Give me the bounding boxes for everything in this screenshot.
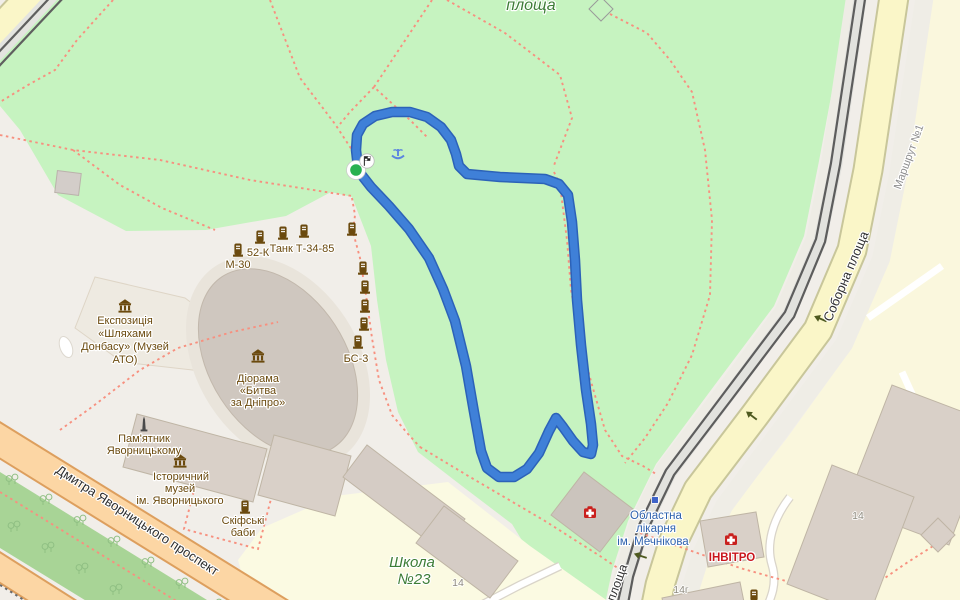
map-canvas[interactable]: площа М-30 52-К Танк Т-34-85 БС-3 Експоз… (0, 0, 960, 600)
label-hospital-stop-2: лікарня (636, 523, 676, 535)
label-museum-2: музей (165, 483, 195, 495)
label-diorama-3: за Дніпро» (231, 397, 286, 409)
label-diorama-1: Діорама (237, 373, 280, 385)
memorial-icon (353, 336, 363, 349)
memorial-icon (233, 244, 243, 257)
label-hospital-stop-3: ім. Мечнікова (617, 536, 689, 548)
memorial-icon (360, 281, 370, 294)
memorial-icon (749, 590, 759, 600)
memorial-icon (278, 227, 288, 240)
small-gray-building (55, 171, 82, 196)
memorial-icon (359, 318, 369, 331)
label-diorama-2: «Битва (240, 385, 277, 397)
memorial-icon (358, 262, 368, 275)
label-pamyatnyk-1: Пам'ятник (118, 433, 170, 445)
label-bs3: БС-3 (344, 353, 369, 365)
label-pamyatnyk-2: Яворницькому (107, 445, 182, 457)
label-school-1: Школа (389, 554, 435, 571)
label-house-14g: 14г (673, 584, 689, 596)
label-m30: М-30 (225, 259, 250, 271)
memorial-icon (360, 300, 370, 313)
memorial-icon (347, 223, 357, 236)
label-square-top: площа (506, 0, 556, 14)
label-invitro: ІНВІТРО (709, 552, 756, 564)
label-expo-2: «Шляхами (98, 328, 152, 340)
label-school-2: №23 (398, 571, 432, 588)
checkered-flag-icon[interactable] (360, 154, 374, 168)
memorial-icon (255, 231, 265, 244)
label-house-14-right: 14 (852, 510, 864, 522)
label-house-14-school: 14 (452, 577, 464, 589)
label-skifski-1: Скіфські (222, 515, 265, 527)
label-expo-1: Експозиція (97, 315, 153, 327)
label-skifski-2: баби (231, 527, 256, 539)
memorial-icon (240, 501, 250, 514)
memorial-icon (299, 225, 309, 238)
label-expo-3: Донбасу» (Музей (81, 341, 169, 353)
bus-stop-icon[interactable] (652, 497, 659, 504)
label-tank: Танк Т-34-85 (270, 243, 335, 255)
label-museum-3: ім. Яворницького (136, 495, 223, 507)
label-museum-1: Історичний (153, 471, 209, 483)
label-hospital-stop-1: Областна (630, 510, 682, 522)
start-dot-icon (350, 164, 362, 176)
label-expo-4: АТО) (113, 354, 138, 366)
map-svg[interactable]: площа М-30 52-К Танк Т-34-85 БС-3 Експоз… (0, 0, 960, 600)
label-52k: 52-К (247, 247, 270, 259)
